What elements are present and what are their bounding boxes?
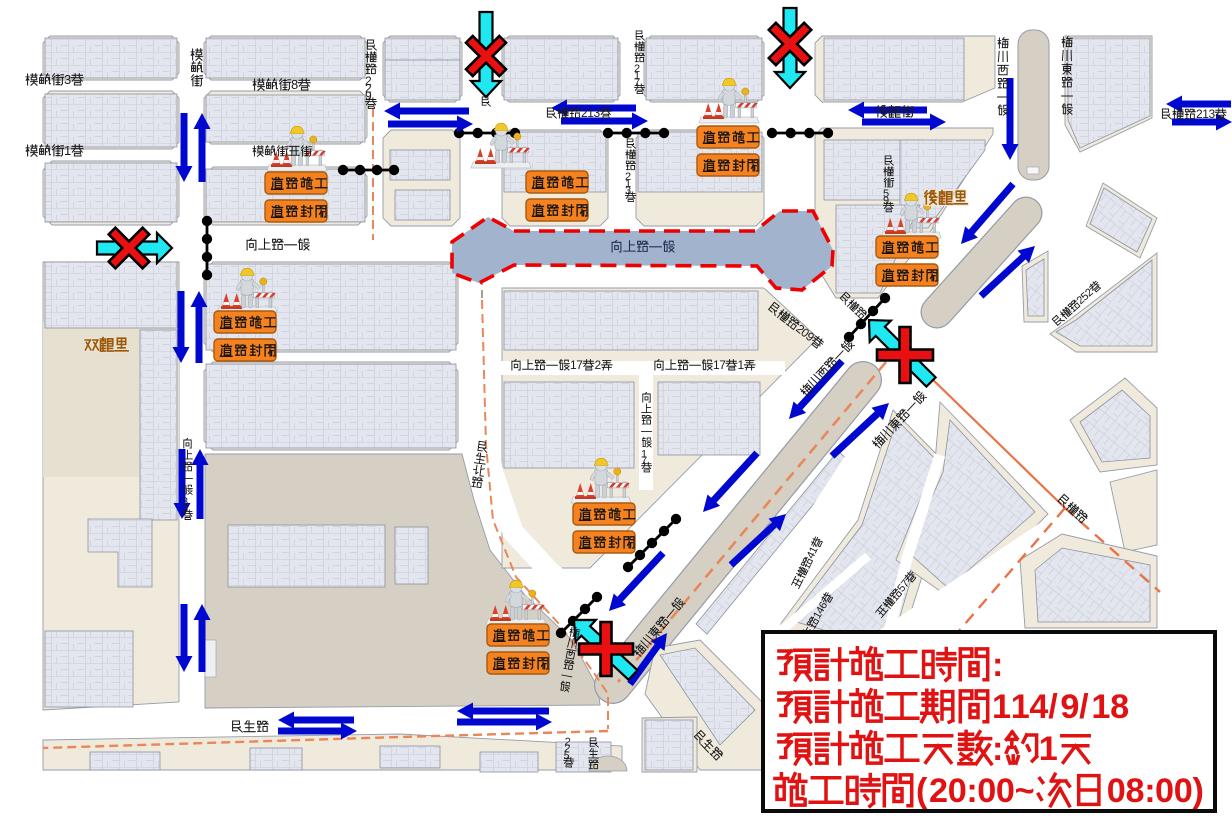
svg-text::: : bbox=[992, 730, 1003, 768]
svg-text:0: 0 bbox=[1155, 772, 1174, 810]
svg-text:9: 9 bbox=[1060, 688, 1079, 726]
svg-text:1: 1 bbox=[1091, 688, 1110, 726]
svg-text::: : bbox=[966, 772, 977, 810]
svg-text:0: 0 bbox=[1174, 772, 1193, 810]
svg-text:7: 7 bbox=[641, 455, 647, 467]
svg-text:1: 1 bbox=[64, 143, 71, 158]
svg-text:3: 3 bbox=[64, 72, 71, 87]
svg-text:0: 0 bbox=[1107, 772, 1126, 810]
svg-text:9: 9 bbox=[883, 195, 889, 207]
svg-text:7: 7 bbox=[576, 358, 583, 372]
svg-text:/: / bbox=[1048, 688, 1058, 726]
svg-text:2: 2 bbox=[929, 772, 948, 810]
svg-text:0: 0 bbox=[948, 772, 967, 810]
svg-text::: : bbox=[992, 646, 1003, 684]
svg-text:7: 7 bbox=[719, 358, 726, 372]
svg-text:0: 0 bbox=[977, 772, 996, 810]
svg-text:3: 3 bbox=[1209, 107, 1216, 121]
svg-text:4: 4 bbox=[1029, 688, 1048, 726]
svg-text:/: / bbox=[1079, 688, 1089, 726]
svg-text:3: 3 bbox=[594, 106, 601, 120]
svg-text:9: 9 bbox=[365, 89, 372, 103]
svg-text:~: ~ bbox=[1015, 772, 1035, 810]
svg-text:2: 2 bbox=[595, 358, 602, 372]
svg-text:3: 3 bbox=[625, 185, 631, 197]
svg-text:(: ( bbox=[916, 772, 928, 810]
svg-text:3: 3 bbox=[182, 503, 188, 515]
svg-text:7: 7 bbox=[634, 77, 640, 89]
svg-text:5: 5 bbox=[563, 750, 570, 762]
svg-text:1: 1 bbox=[738, 358, 745, 372]
svg-text:1: 1 bbox=[992, 688, 1011, 726]
svg-text::: : bbox=[1144, 772, 1155, 810]
svg-text:8: 8 bbox=[1110, 688, 1129, 726]
svg-text:1: 1 bbox=[1011, 688, 1030, 726]
svg-text:): ) bbox=[1193, 772, 1204, 810]
svg-text:1: 1 bbox=[1039, 730, 1058, 768]
svg-text:0: 0 bbox=[996, 772, 1015, 810]
svg-text:8: 8 bbox=[1126, 772, 1145, 810]
svg-text:8: 8 bbox=[291, 77, 298, 92]
